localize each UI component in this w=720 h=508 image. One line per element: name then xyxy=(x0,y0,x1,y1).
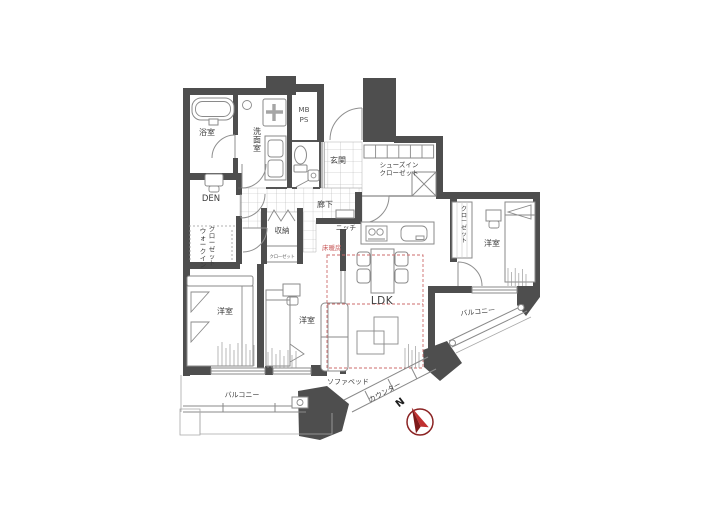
label-closet-right: クローゼット xyxy=(461,206,467,245)
label-balcony-bottom: バルコニー xyxy=(225,391,260,399)
toilet xyxy=(295,146,307,164)
bed-single xyxy=(266,290,290,366)
label-entrance: 玄関 xyxy=(330,155,346,165)
dining-table xyxy=(371,249,394,293)
label-shoes-closet-2: クローゼット xyxy=(380,168,419,177)
table xyxy=(374,317,398,344)
label-bedroom-right: 洋室 xyxy=(484,238,500,248)
label-niche: ニッチ xyxy=(336,224,357,232)
bed-double xyxy=(187,286,253,366)
desk xyxy=(283,284,300,296)
label-bath: 浴室 xyxy=(199,127,215,137)
desk-right xyxy=(486,210,501,221)
living-furniture xyxy=(321,303,398,371)
niche-box xyxy=(336,210,354,218)
label-sofa-bed: ソファベッド xyxy=(327,378,369,386)
label-small-closet: クローゼット xyxy=(269,253,294,260)
compass-icon: N xyxy=(394,396,433,435)
kitchen xyxy=(361,222,434,244)
dining-set xyxy=(357,249,408,293)
label-floor-heating: 床暖房 xyxy=(322,243,342,252)
label-storage: 収納 xyxy=(275,225,290,235)
label-bedroom-left: 洋室 xyxy=(217,306,233,316)
label-ps: PS xyxy=(300,115,309,124)
washroom xyxy=(242,99,286,188)
railing-bottom xyxy=(183,406,306,412)
label-ldk: LDK xyxy=(371,295,394,307)
label-washroom: 洗面室 xyxy=(253,126,261,153)
entrance-tiles xyxy=(324,142,362,188)
toilet-room xyxy=(294,146,319,187)
label-mb: MB xyxy=(298,105,309,114)
bedroom-right-door-arc xyxy=(458,262,482,286)
bedroom-left-group xyxy=(187,276,253,366)
ldk-door-arc xyxy=(362,196,389,223)
bed-headboard xyxy=(187,276,253,286)
low-table xyxy=(357,331,384,354)
den-chair xyxy=(205,174,223,186)
label-hallway: 廊下 xyxy=(317,199,333,209)
label-wic-2: クローゼット xyxy=(209,225,216,267)
label-balcony-right: バルコニー xyxy=(460,306,496,318)
label-den: DEN xyxy=(202,194,220,204)
compass-n-label: N xyxy=(394,396,407,410)
bed-single-right xyxy=(505,202,535,282)
bath-door-arc xyxy=(212,135,235,158)
floor-plan-canvas: N 浴室 洗面室 MB PS 玄関 シューズイン クローゼット DEN ウォーク… xyxy=(0,0,720,508)
front-door-arc xyxy=(330,108,362,140)
floor-plan-page: N 浴室 洗面室 MB PS 玄関 シューズイン クローゼット DEN ウォーク… xyxy=(0,0,720,508)
label-wic-1: ウォークイン xyxy=(200,227,207,269)
label-shoes-closet-1: シューズイン xyxy=(380,160,419,169)
label-bedroom-middle: 洋室 xyxy=(299,315,315,325)
wall-block-bottom xyxy=(298,386,349,440)
washroom-door-arc xyxy=(242,164,266,188)
